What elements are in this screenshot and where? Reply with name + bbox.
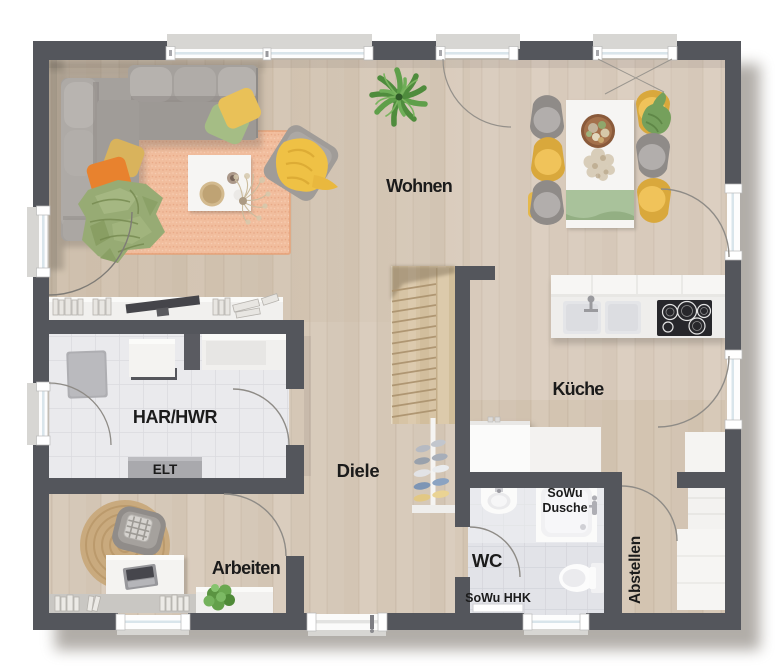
svg-text:Küche: Küche (552, 379, 604, 399)
svg-text:Arbeiten: Arbeiten (212, 558, 280, 578)
svg-text:ELT: ELT (153, 462, 178, 477)
svg-text:Dusche: Dusche (542, 501, 587, 515)
svg-text:HAR/HWR: HAR/HWR (133, 407, 218, 427)
svg-text:Wohnen: Wohnen (386, 176, 452, 196)
svg-text:SoWu HHK: SoWu HHK (465, 591, 531, 605)
svg-text:Diele: Diele (337, 460, 380, 481)
svg-text:Abstellen: Abstellen (627, 536, 644, 604)
svg-text:WC: WC (472, 550, 502, 571)
svg-text:SoWu: SoWu (547, 486, 582, 500)
